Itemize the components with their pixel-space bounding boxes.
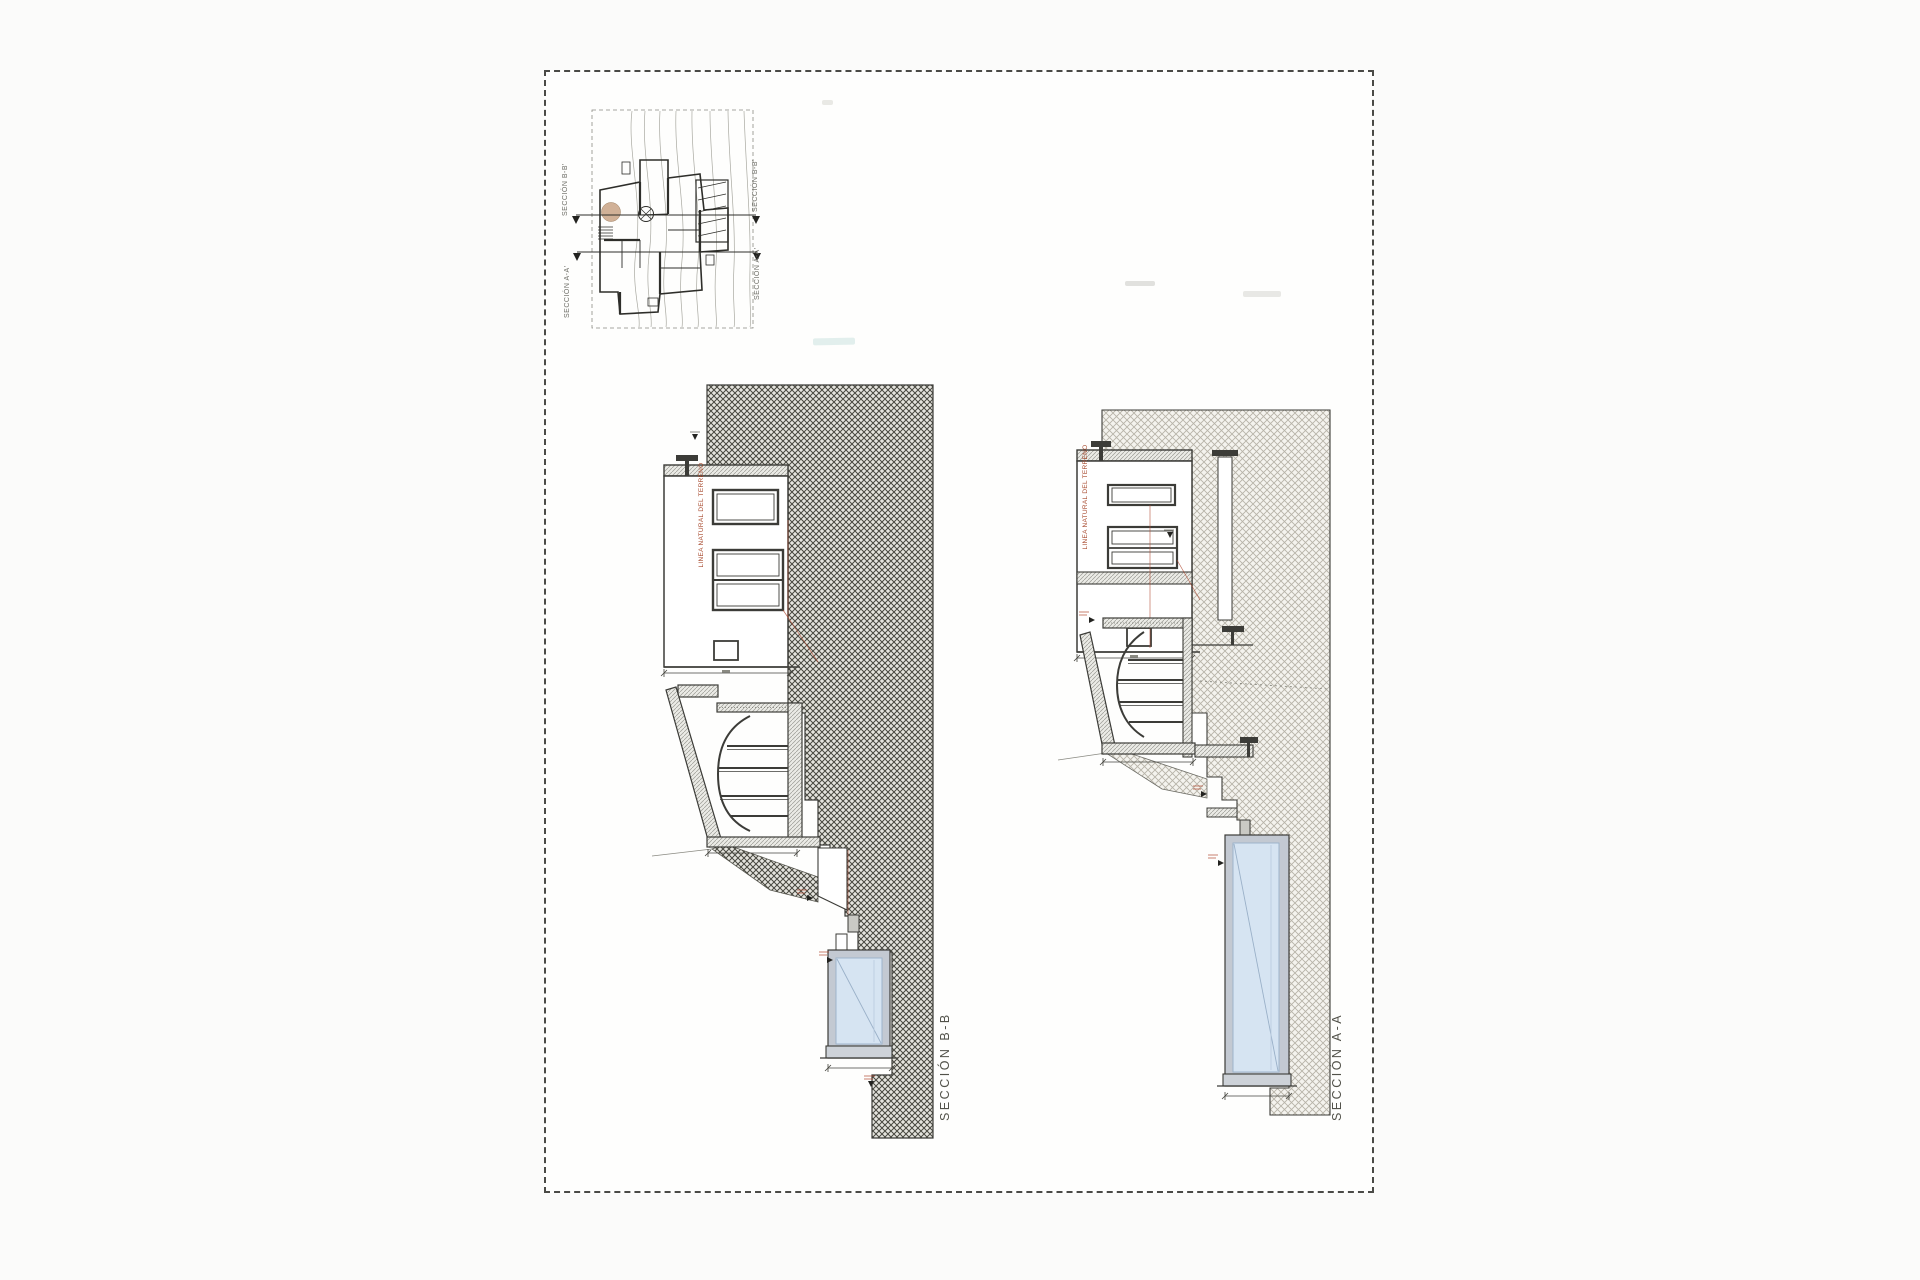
pool-bb	[820, 950, 898, 1058]
mid-slab	[1077, 572, 1192, 584]
step-block	[1240, 820, 1250, 835]
terrace-slab	[678, 685, 718, 697]
scan-smudge	[813, 338, 855, 346]
pool-base-slab	[1223, 1074, 1291, 1086]
terrain-line-label-bb: LINEA NATURAL DEL TERRENO	[698, 462, 705, 567]
small-window	[714, 641, 738, 660]
buttress-wall	[666, 687, 722, 847]
vault-arch	[718, 716, 750, 831]
scan-smudge	[1243, 291, 1281, 297]
roof-slab	[1077, 450, 1192, 461]
section-bb-title: SECCIÓN B-B	[938, 1026, 952, 1121]
site-plan-drawing	[558, 95, 793, 345]
window-band-2	[1108, 527, 1177, 568]
section-arrow	[573, 253, 581, 261]
step-block	[848, 915, 859, 932]
vault-room	[707, 703, 820, 847]
vault-base-slab	[707, 837, 820, 847]
dimension-line	[661, 669, 793, 677]
keyplan-label-aa-left: SECCIÓN A-A'	[564, 256, 571, 318]
round-table	[602, 203, 621, 222]
vault-right-wall	[788, 703, 802, 845]
vault-right-wall	[1183, 618, 1192, 757]
vault-shelf-lines	[1118, 660, 1183, 722]
window-band-1	[713, 490, 778, 524]
roof-slab	[664, 465, 788, 476]
keyplan-label-bb-right: SECCIÓN B-B'	[752, 150, 759, 212]
vault-base-slab	[1102, 743, 1195, 754]
keyplan-label-bb-left: SECCIÓN B-B'	[562, 154, 569, 216]
vault-shelf-lines	[719, 746, 788, 816]
scanned-architectural-sheet: { "sheet": { "type": "architectural sect…	[0, 0, 1920, 1280]
scan-smudge	[822, 100, 833, 105]
step-slab	[1207, 808, 1237, 817]
contour-lines	[631, 111, 751, 327]
pool-base-slab	[826, 1046, 892, 1058]
light-well-shaft	[1218, 457, 1232, 620]
terrace-slab	[1195, 745, 1253, 757]
house-floor-plan	[598, 160, 728, 314]
terrain-line-label-aa: LINEA NATURAL DEL TERRENO	[1082, 444, 1089, 549]
skimmer-slot	[836, 934, 847, 950]
keyplan-label-aa-right: SECCIÓN A-A'	[754, 238, 761, 300]
window-band-1	[1108, 485, 1175, 505]
ground-line	[652, 849, 712, 856]
pool-aa	[1217, 835, 1297, 1086]
terrace-pocket	[818, 848, 847, 910]
section-bb-drawing: LINEA NATURAL DEL TERRENO	[648, 370, 970, 1152]
railing-post	[1212, 450, 1238, 456]
section-aa-drawing: LINEA NATURAL DEL TERRENO	[1055, 395, 1345, 1157]
window-band-2	[713, 550, 783, 610]
dimension-line	[825, 1064, 895, 1072]
section-arrow	[572, 216, 580, 224]
ground-line	[1058, 753, 1106, 760]
section-aa-title: SECCIÓN A-A	[1330, 1026, 1344, 1121]
scan-smudge	[1125, 281, 1155, 286]
